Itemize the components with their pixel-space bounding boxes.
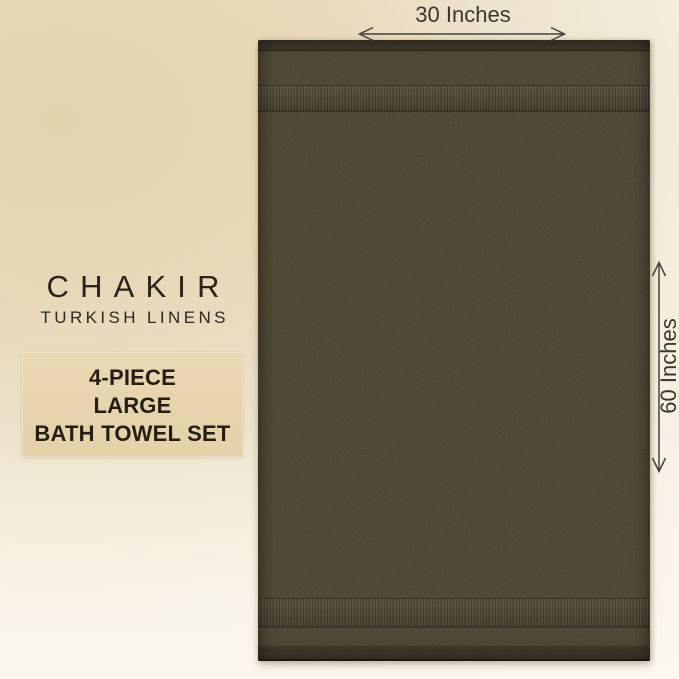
brand-block: CHAKIR TURKISH LINENS: [8, 270, 258, 328]
brand-name: CHAKIR: [8, 270, 258, 304]
towel-shading: [258, 40, 650, 661]
brand-subtitle: TURKISH LINENS: [8, 308, 258, 328]
product-line-3: BATH TOWEL SET: [22, 420, 243, 448]
width-arrow-icon: [356, 26, 568, 42]
product-line-1: 4-PIECE: [22, 364, 243, 392]
product-line-2: LARGE: [22, 392, 243, 420]
height-arrow-icon: [651, 259, 667, 475]
bath-towel: [258, 40, 650, 661]
product-image: 30 Inches 60 Inches CHAKIR TURKISH LINEN…: [0, 0, 679, 679]
product-info-box: 4-PIECE LARGE BATH TOWEL SET: [22, 352, 243, 457]
width-dimension-label: 30 Inches: [380, 3, 546, 27]
